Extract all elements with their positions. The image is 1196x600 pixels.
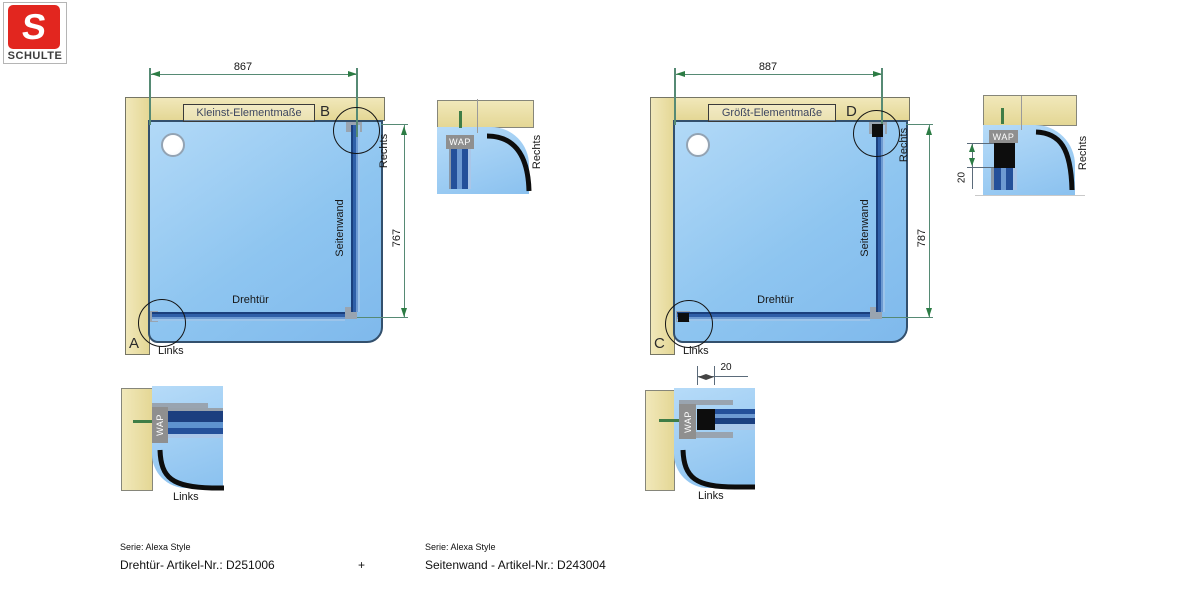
min-height-arrow-up bbox=[401, 126, 407, 135]
detail-c-dim-arrow-right bbox=[706, 374, 714, 380]
max-sidewall-label: Seitenwand bbox=[859, 195, 871, 261]
detail-a-wap-profile: WAP bbox=[152, 407, 168, 443]
detail-d-wap-profile: WAP bbox=[989, 130, 1018, 143]
min-detail-a-marker: A bbox=[129, 335, 139, 352]
min-sidewall-label: Seitenwand bbox=[334, 195, 346, 261]
detail-d-glass-profile bbox=[991, 168, 1017, 190]
min-title-box: Kleinst-Elementmaße bbox=[183, 104, 315, 122]
detail-c-wap-profile: WAP bbox=[679, 404, 696, 439]
detail-a-glass-profile bbox=[168, 408, 223, 438]
detail-a-links-label: Links bbox=[173, 491, 199, 503]
detail-c-links-label: Links bbox=[698, 490, 724, 502]
schulte-logo-mark: S bbox=[8, 5, 60, 49]
max-width-value: 887 bbox=[748, 61, 788, 73]
min-width-arrow-left bbox=[151, 71, 160, 77]
footer-right-series: Serie: Alexa Style bbox=[425, 542, 496, 552]
detail-b-ext-line bbox=[459, 111, 462, 128]
schulte-shower-dimension-diagram: { "logo": { "letter": "S", "brand": "SCH… bbox=[0, 0, 1196, 600]
max-height-dim-line bbox=[929, 125, 930, 318]
detail-d-dim-arrow-up bbox=[969, 144, 975, 152]
min-detail-a-circle bbox=[138, 299, 186, 347]
max-detail-d-circle bbox=[853, 110, 900, 157]
max-ext-line-bottom bbox=[882, 317, 933, 318]
min-width-dim-line bbox=[150, 74, 357, 75]
detail-c-glass-profile bbox=[715, 409, 755, 430]
detail-d-extension-block bbox=[994, 143, 1015, 168]
min-detail-b-marker: B bbox=[320, 103, 330, 120]
min-width-value: 867 bbox=[223, 61, 263, 73]
detail-d-center-line bbox=[1021, 96, 1022, 130]
detail-b-center-line bbox=[477, 99, 478, 133]
max-drain-hole bbox=[686, 133, 710, 157]
detail-d-dim-value: 20 bbox=[957, 145, 968, 211]
min-height-arrow-down bbox=[401, 308, 407, 317]
detail-c-wap-text: WAP bbox=[683, 411, 693, 433]
max-title-box: Größt-Elementmaße bbox=[708, 104, 836, 122]
detail-a-wall bbox=[121, 388, 153, 491]
detail-c-dim-value: 20 bbox=[711, 362, 741, 373]
max-width-dim-line bbox=[675, 74, 882, 75]
max-detail-c-circle bbox=[665, 300, 713, 348]
max-rechts-label: Rechts bbox=[898, 112, 910, 178]
max-height-arrow-down bbox=[926, 308, 932, 317]
logo-s-glyph: S bbox=[20, 9, 48, 45]
max-detail-c-marker: C bbox=[654, 335, 665, 352]
min-door-label: Drehtür bbox=[223, 294, 278, 306]
footer-left-article: Drehtür- Artikel-Nr.: D251006 bbox=[120, 558, 275, 572]
detail-c-extension-block bbox=[697, 409, 715, 430]
detail-c-ext-line bbox=[659, 419, 679, 422]
detail-d-dim-arrow-down bbox=[969, 158, 975, 166]
detail-d-wall bbox=[983, 95, 1077, 126]
max-detail-d-marker: D bbox=[846, 103, 857, 120]
detail-c-dim-arrow-left bbox=[698, 374, 706, 380]
detail-d-ext-line bbox=[1001, 108, 1004, 124]
max-door-label: Drehtür bbox=[748, 294, 803, 306]
min-ext-line-bottom bbox=[357, 317, 408, 318]
schulte-logo: S SCHULTE bbox=[3, 2, 67, 64]
footer-left-series: Serie: Alexa Style bbox=[120, 542, 191, 552]
max-width-arrow-left bbox=[676, 71, 685, 77]
min-width-arrow-right bbox=[348, 71, 357, 77]
footer-plus: + bbox=[358, 558, 365, 572]
detail-a-wap-text: WAP bbox=[155, 414, 165, 436]
detail-b-rechts-label: Rechts bbox=[531, 119, 543, 185]
detail-b-wap-profile: WAP bbox=[446, 135, 474, 149]
detail-d-bottom-edge bbox=[975, 195, 1085, 196]
schulte-logo-wordmark: SCHULTE bbox=[4, 50, 66, 62]
detail-b-glass-profile bbox=[449, 149, 471, 189]
min-height-value: 767 bbox=[391, 205, 403, 271]
min-detail-b-circle bbox=[333, 107, 380, 154]
detail-c-wall bbox=[645, 390, 675, 491]
detail-d-rechts-label: Rechts bbox=[1077, 120, 1089, 186]
max-height-arrow-up bbox=[926, 126, 932, 135]
min-height-dim-line bbox=[404, 125, 405, 318]
detail-a-ext-line bbox=[133, 420, 152, 423]
footer-right-article: Seitenwand - Artikel-Nr.: D243004 bbox=[425, 558, 606, 572]
max-width-arrow-right bbox=[873, 71, 882, 77]
max-height-value: 787 bbox=[916, 205, 928, 271]
min-drain-hole bbox=[161, 133, 185, 157]
detail-b-wall bbox=[437, 100, 534, 128]
